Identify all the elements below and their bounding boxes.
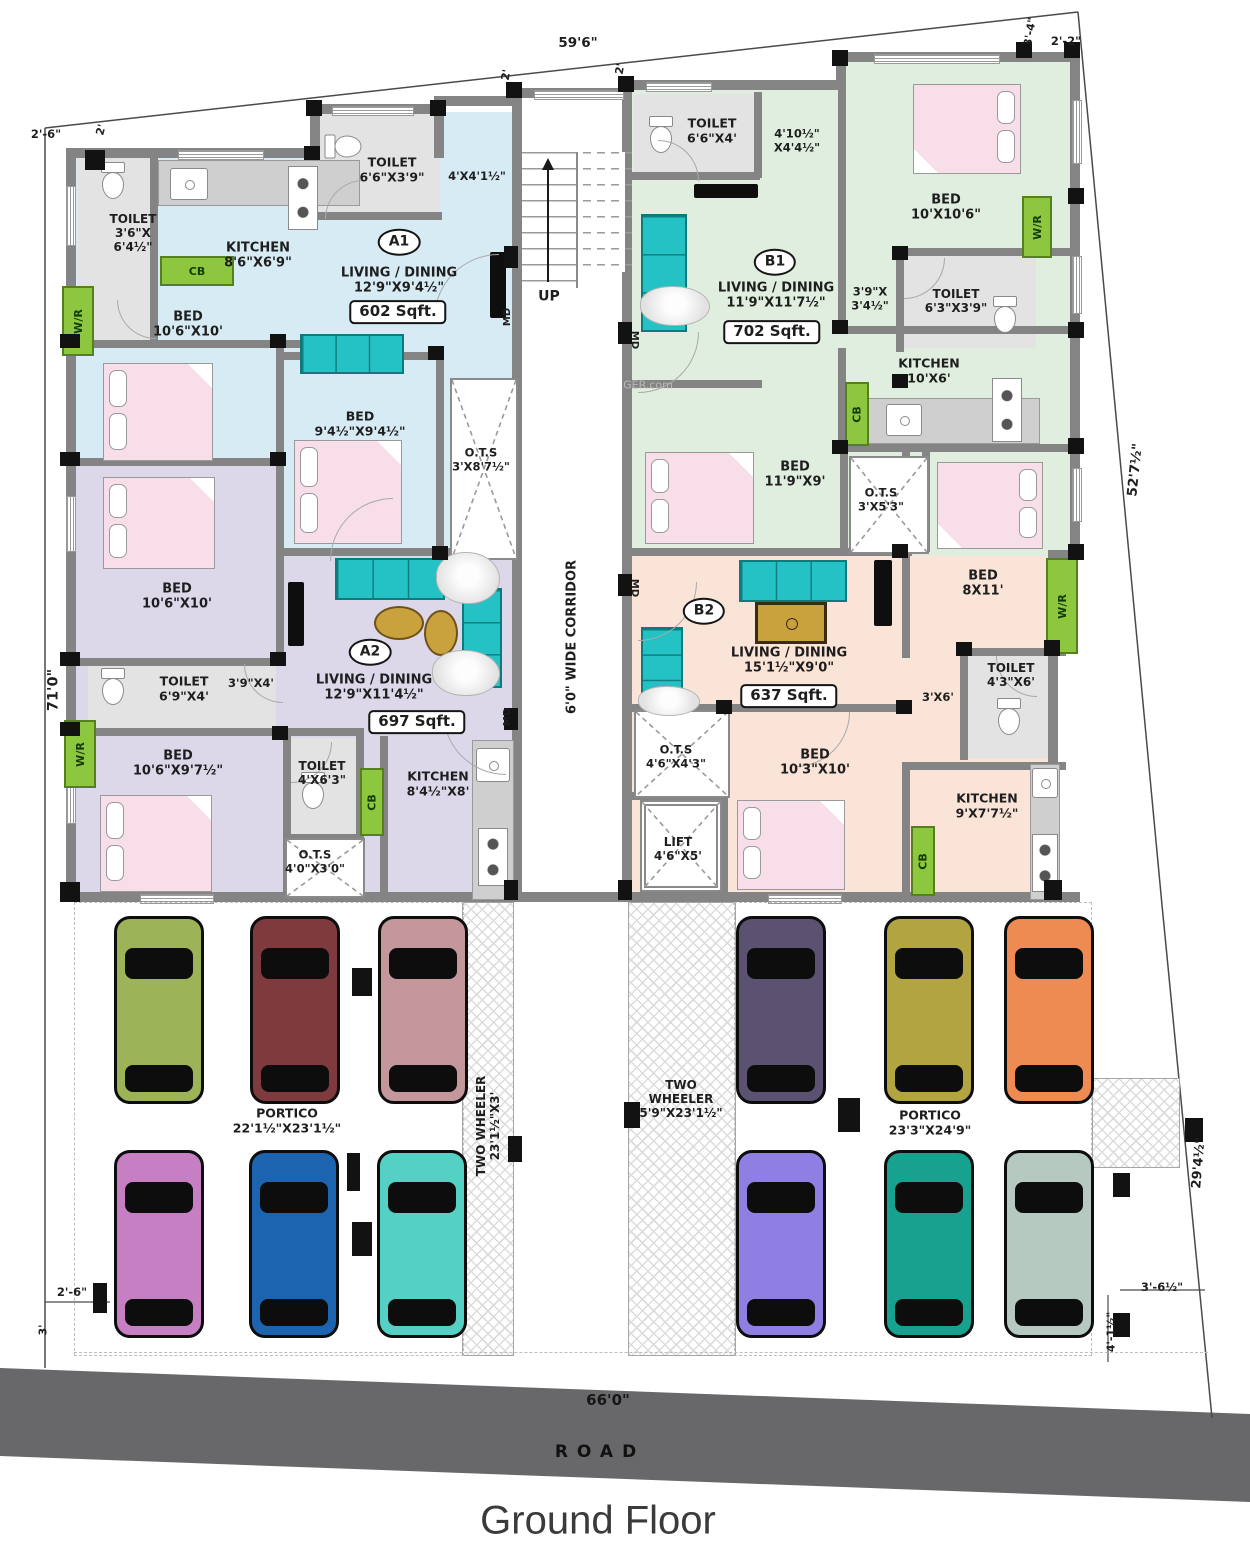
pillow bbox=[109, 484, 127, 518]
bed2-a1: BED9'4½"X9'4½" bbox=[315, 409, 406, 439]
pillow bbox=[997, 130, 1015, 163]
sofa-furniture bbox=[335, 558, 445, 600]
label-line: 10'6"X10' bbox=[142, 597, 212, 612]
passage-b1-2: 3'9"X3'4½" bbox=[851, 285, 888, 312]
label-line: WHEELER bbox=[639, 1092, 722, 1106]
dim: 2' bbox=[94, 123, 109, 137]
parked-car-10 bbox=[736, 1150, 826, 1338]
pillow bbox=[1019, 507, 1037, 539]
column-marker bbox=[1044, 880, 1062, 900]
watermark: GER.com bbox=[623, 380, 673, 393]
pillow bbox=[109, 524, 127, 558]
column-marker bbox=[60, 652, 80, 666]
parked-car-1 bbox=[114, 916, 204, 1104]
label-line: BED bbox=[153, 310, 223, 325]
label-line: 4'10½" bbox=[774, 127, 820, 141]
living-b2: LIVING / DINING15'1½"X9'0" bbox=[731, 646, 847, 677]
parked-car-5 bbox=[249, 1150, 339, 1338]
label-line: 11'9"X11'7½" bbox=[718, 296, 834, 311]
toilet-b2: TOILET4'3"X6' bbox=[987, 661, 1035, 689]
toilet-fixture bbox=[100, 668, 126, 705]
bed-fold bbox=[914, 149, 938, 173]
column-marker bbox=[892, 544, 908, 558]
kitchen-sink bbox=[170, 168, 208, 200]
toilet-bowl bbox=[102, 678, 124, 705]
kitchen-a2: KITCHEN8'4½"X8' bbox=[407, 769, 470, 799]
door-md: MD bbox=[502, 708, 514, 726]
column-marker bbox=[270, 652, 286, 666]
parked-car-11 bbox=[884, 1150, 974, 1338]
dim: 2' bbox=[500, 68, 515, 81]
toilet-bowl bbox=[998, 708, 1020, 735]
column-marker bbox=[347, 1153, 360, 1191]
column-marker bbox=[1068, 322, 1084, 338]
toilet-bowl bbox=[335, 136, 362, 158]
label-line: TWO bbox=[639, 1078, 722, 1092]
bed2-a2: BED10'6"X9'7½" bbox=[133, 749, 223, 780]
column-marker bbox=[832, 50, 848, 66]
ots-b2: O.T.S4'6"X4'3" bbox=[646, 743, 706, 770]
tv-panel bbox=[694, 184, 758, 198]
plant-decor bbox=[640, 286, 710, 326]
utility-box-cb: CB bbox=[360, 768, 384, 836]
label-line: TOILET bbox=[687, 116, 737, 131]
kitchen-sink bbox=[1032, 768, 1058, 798]
twowheeler-right: TWOWHEELER5'9"X23'1½" bbox=[639, 1078, 722, 1120]
table-furniture bbox=[424, 610, 458, 656]
wall-segment bbox=[436, 352, 444, 560]
bed-fold bbox=[190, 478, 214, 502]
label-line: O.T.S bbox=[858, 486, 904, 500]
label-line: 4'6"X4'3" bbox=[646, 757, 706, 771]
stairs-divider bbox=[576, 152, 578, 288]
column-marker bbox=[506, 82, 522, 98]
living-a1: LIVING / DINING12'9"X9'4½" bbox=[341, 266, 457, 297]
label-line: TOILET bbox=[298, 759, 346, 773]
column-marker bbox=[352, 1222, 372, 1256]
table-furniture bbox=[755, 602, 827, 644]
label-line: 22'1½"X23'1½" bbox=[233, 1121, 341, 1136]
door-md: MD bbox=[628, 331, 640, 349]
parked-car-9 bbox=[1004, 916, 1094, 1104]
column-marker bbox=[1068, 544, 1084, 560]
window bbox=[332, 106, 414, 116]
area-a2: 697 Sqft. bbox=[368, 710, 465, 734]
utility-box-cb: CB bbox=[845, 382, 869, 446]
dim: 2'-6" bbox=[57, 1286, 87, 1300]
toilet-fixture bbox=[992, 296, 1018, 333]
label-line: LIVING / DINING bbox=[718, 281, 834, 296]
pillow bbox=[106, 802, 124, 839]
column-marker bbox=[93, 1283, 107, 1313]
bed-fold bbox=[938, 524, 962, 548]
utility-label: W/R bbox=[1056, 594, 1069, 619]
toilet-bowl bbox=[102, 172, 124, 199]
label-line: 3'X8'7½" bbox=[452, 460, 510, 474]
column-marker bbox=[272, 726, 288, 740]
label-line: 15'1½"X9'0" bbox=[731, 661, 847, 676]
pillow bbox=[743, 807, 761, 840]
area-a1: 602 Sqft. bbox=[349, 300, 446, 324]
unit-b2: B2 bbox=[683, 598, 725, 625]
pillow bbox=[109, 413, 127, 450]
pillow bbox=[997, 91, 1015, 124]
parked-car-12 bbox=[1004, 1150, 1094, 1338]
window bbox=[66, 496, 76, 552]
wall-segment bbox=[838, 444, 1078, 452]
label-line: 6'6"X3'9" bbox=[359, 170, 424, 185]
column-marker bbox=[832, 440, 848, 454]
label-line: KITCHEN bbox=[407, 769, 470, 784]
bed-furniture bbox=[103, 363, 213, 461]
label-line: PORTICO bbox=[233, 1106, 341, 1121]
road-label: ROAD bbox=[555, 1442, 645, 1462]
column-marker bbox=[1068, 188, 1084, 204]
parked-car-8 bbox=[884, 916, 974, 1104]
column-marker bbox=[60, 452, 80, 466]
utility-box-w-r: W/R bbox=[1022, 196, 1052, 258]
column-marker bbox=[618, 880, 632, 900]
stove bbox=[992, 378, 1022, 442]
wall-segment bbox=[754, 92, 762, 178]
label-line: TOILET bbox=[925, 287, 988, 301]
window bbox=[66, 186, 76, 246]
parked-car-6 bbox=[377, 1150, 467, 1338]
pillow bbox=[743, 846, 761, 879]
parked-car-4 bbox=[114, 1150, 204, 1338]
wall-segment bbox=[838, 60, 846, 332]
stairs-arrow-head bbox=[542, 158, 554, 170]
column-marker bbox=[60, 882, 80, 902]
column-marker bbox=[504, 880, 518, 900]
wall-segment bbox=[896, 252, 904, 352]
label-line: BED bbox=[780, 748, 850, 763]
column-marker bbox=[428, 346, 444, 360]
tv-panel bbox=[874, 560, 892, 626]
label-line: TOILET bbox=[359, 155, 424, 170]
label-line: 6'9"X4' bbox=[159, 689, 209, 704]
living-a2: LIVING / DINING12'9"X11'4½" bbox=[316, 673, 432, 704]
wall-segment bbox=[960, 648, 968, 760]
wall-segment bbox=[838, 326, 1078, 334]
label-line: 3'9"X bbox=[851, 285, 888, 299]
plant-decor bbox=[432, 650, 500, 696]
toilet-b1-1: TOILET6'6"X4' bbox=[687, 116, 737, 146]
column-marker bbox=[304, 146, 320, 160]
label-line: BED bbox=[911, 193, 981, 208]
label-line: 12'9"X11'4½" bbox=[316, 688, 432, 703]
label-line: 8'4½"X8' bbox=[407, 784, 470, 799]
stove bbox=[288, 166, 318, 230]
label-line: O.T.S bbox=[646, 743, 706, 757]
column-marker bbox=[956, 642, 972, 656]
utility-box-cb: CB bbox=[160, 256, 234, 286]
label-line: 6'6"X4' bbox=[687, 131, 737, 146]
sofa-furniture bbox=[739, 560, 847, 602]
area-b1: 702 Sqft. bbox=[723, 320, 820, 344]
bed-furniture bbox=[913, 84, 1021, 174]
label-line: 10'6"X9'7½" bbox=[133, 764, 223, 779]
toilet-a1-2: TOILET6'6"X3'9" bbox=[359, 155, 424, 185]
column-marker bbox=[838, 1098, 860, 1132]
utility-label: CB bbox=[851, 406, 864, 422]
label-line: 10'X10'6" bbox=[911, 208, 981, 223]
label-line: 10'3"X10' bbox=[780, 763, 850, 778]
toilet-fixture bbox=[325, 134, 362, 160]
passage-b1: 4'10½"X4'4½" bbox=[774, 127, 820, 154]
label-line: LIFT bbox=[654, 835, 702, 849]
column-marker bbox=[352, 968, 372, 996]
label-line: O.T.S bbox=[452, 446, 510, 460]
label-line: KITCHEN bbox=[224, 241, 292, 256]
column-marker bbox=[60, 334, 80, 348]
wall-segment bbox=[66, 728, 364, 736]
label-line: 9'4½"X9'4½" bbox=[315, 424, 406, 439]
pillow bbox=[651, 459, 669, 493]
bed-furniture bbox=[103, 477, 215, 569]
dim: 59'6" bbox=[558, 36, 597, 52]
label-line: 6'4½" bbox=[110, 240, 157, 254]
label-line: 10'X6' bbox=[898, 371, 960, 386]
label-line: PORTICO bbox=[889, 1108, 972, 1123]
column-marker bbox=[430, 100, 446, 116]
bed-furniture bbox=[737, 800, 845, 890]
pillow bbox=[300, 447, 318, 487]
toilet-a2-1: TOILET6'9"X4' bbox=[159, 674, 209, 704]
twowheeler-left: TWO WHEELER23'1½"X3' bbox=[474, 1076, 502, 1177]
kitchen-sink bbox=[886, 404, 922, 436]
stairs-treads-upper bbox=[577, 152, 632, 272]
bed2-b2: BED10'3"X10' bbox=[780, 748, 850, 779]
dim: 52'7½" bbox=[1125, 443, 1146, 498]
bed-fold bbox=[188, 364, 212, 388]
label-line: 4'X6'3" bbox=[298, 773, 346, 787]
bed1-b1: BED10'X10'6" bbox=[911, 193, 981, 224]
label-line: 10'6"X10' bbox=[153, 325, 223, 340]
door-md: MD bbox=[502, 308, 514, 326]
tv-panel bbox=[288, 582, 304, 646]
column-marker bbox=[1113, 1173, 1130, 1197]
floorplan-canvas: W/RW/RW/RW/RCBCBCBCBTOILET3'6"X6'4½"KITC… bbox=[0, 0, 1250, 1550]
column-marker bbox=[85, 150, 105, 170]
bed-fold bbox=[377, 441, 401, 465]
kitchen-b2: KITCHEN9'X7'7½" bbox=[956, 791, 1019, 821]
dim: 71'0" bbox=[45, 669, 62, 711]
kitchen-b1: KITCHEN10'X6' bbox=[898, 356, 960, 386]
label-line: 6'3"X3'9" bbox=[925, 301, 988, 315]
label-line: 4'6"X5' bbox=[654, 849, 702, 863]
label-line: 5'9"X23'1½" bbox=[639, 1106, 722, 1120]
bed2-b1: BED11'9"X9' bbox=[765, 460, 826, 491]
two-wheeler-hatch bbox=[1092, 1078, 1180, 1168]
stove bbox=[478, 828, 508, 886]
label-line: 3'6"X bbox=[110, 226, 157, 240]
dim: 3'-6½" bbox=[1141, 1281, 1183, 1295]
label-line: BED bbox=[142, 582, 212, 597]
toilet-a1-1: TOILET3'6"X6'4½" bbox=[110, 212, 157, 254]
dim: 2'-6" bbox=[31, 128, 61, 142]
road-width-dimension: 66'0" bbox=[586, 1391, 630, 1409]
wall-segment bbox=[902, 762, 910, 900]
passage-a2: 3'9"X4' bbox=[228, 677, 274, 691]
toilet-a2-2: TOILET4'X6'3" bbox=[298, 759, 346, 787]
utility-label: CB bbox=[366, 794, 379, 810]
label-line: TOILET bbox=[159, 674, 209, 689]
label-line: LIVING / DINING bbox=[341, 266, 457, 281]
bed-fold bbox=[820, 801, 844, 825]
page-title: Ground Floor bbox=[480, 1499, 716, 1544]
toilet-b1-2: TOILET6'3"X3'9" bbox=[925, 287, 988, 315]
lift: LIFT4'6"X5' bbox=[654, 835, 702, 863]
column-marker bbox=[618, 76, 634, 92]
stairs-treads bbox=[522, 152, 577, 288]
parking-dashed-line bbox=[74, 1352, 1208, 1353]
door-md: MD bbox=[628, 579, 640, 597]
dim: 2'-2" bbox=[1051, 35, 1081, 49]
label-line: KITCHEN bbox=[898, 356, 960, 371]
dim: 3' bbox=[38, 1324, 51, 1335]
pillow bbox=[300, 493, 318, 533]
unit-a2: A2 bbox=[349, 639, 392, 666]
label-line: 23'1½"X3' bbox=[488, 1076, 502, 1177]
parked-car-7 bbox=[736, 916, 826, 1104]
window bbox=[874, 54, 1000, 64]
ots-a1: O.T.S3'X8'7½" bbox=[452, 446, 510, 473]
stairs-up: UP bbox=[538, 289, 560, 306]
label-line: KITCHEN bbox=[956, 791, 1019, 806]
label-line: TOILET bbox=[987, 661, 1035, 675]
bed-furniture bbox=[100, 795, 212, 892]
column-marker bbox=[508, 1136, 522, 1162]
window bbox=[1072, 256, 1082, 314]
utility-label: W/R bbox=[1031, 215, 1044, 240]
ots-b1: O.T.S3'X5'3" bbox=[858, 486, 904, 513]
toilet-bowl bbox=[994, 306, 1016, 333]
window bbox=[534, 90, 624, 100]
column-marker bbox=[896, 700, 912, 714]
column-marker bbox=[832, 320, 848, 334]
unit-b1: B1 bbox=[754, 249, 796, 276]
corridor: 6'0" WIDE CORRIDOR bbox=[564, 560, 579, 714]
bed1-a2: BED10'6"X10' bbox=[142, 582, 212, 613]
label-line: X4'4½" bbox=[774, 141, 820, 155]
kitchen-a1: KITCHEN8'6"X6'9" bbox=[224, 241, 292, 272]
column-marker bbox=[716, 700, 732, 714]
passage-b2: 3'X6' bbox=[922, 691, 954, 705]
parked-car-3 bbox=[378, 916, 468, 1104]
column-marker bbox=[1068, 438, 1084, 454]
label-line: 23'3"X24'9" bbox=[889, 1123, 972, 1138]
label-line: LIVING / DINING bbox=[316, 673, 432, 688]
label-line: TWO WHEELER bbox=[474, 1076, 488, 1177]
dim: 29'4½" bbox=[1189, 1137, 1209, 1189]
dim: 2' bbox=[614, 62, 629, 75]
sofa-furniture bbox=[300, 334, 404, 374]
window bbox=[1072, 468, 1082, 522]
utility-label: W/R bbox=[72, 309, 85, 334]
label-line: 8X11' bbox=[962, 584, 1003, 599]
toilet-fixture bbox=[996, 698, 1022, 735]
column-marker bbox=[624, 1102, 640, 1128]
dim: 3'-4" bbox=[1022, 17, 1040, 48]
road-band bbox=[0, 1368, 1250, 1502]
utility-label: CB bbox=[189, 265, 205, 278]
window bbox=[1072, 100, 1082, 164]
dim: 4'-1½" bbox=[1106, 1312, 1119, 1352]
column-marker bbox=[270, 452, 286, 466]
pillow bbox=[109, 370, 127, 407]
plant-decor bbox=[638, 686, 700, 716]
label-line: BED bbox=[962, 569, 1003, 584]
living-b1: LIVING / DINING11'9"X11'7½" bbox=[718, 281, 834, 312]
pillow bbox=[1019, 469, 1037, 501]
column-marker bbox=[1044, 640, 1060, 656]
pillow bbox=[106, 845, 124, 882]
label-line: BED bbox=[133, 749, 223, 764]
label-line: O.T.S bbox=[285, 848, 345, 862]
utility-box-cb: CB bbox=[911, 826, 935, 896]
portico-left: PORTICO22'1½"X23'1½" bbox=[233, 1106, 341, 1136]
label-line: 12'9"X9'4½" bbox=[341, 281, 457, 296]
bed-furniture bbox=[937, 462, 1043, 549]
bed-furniture bbox=[645, 452, 754, 544]
column-marker bbox=[270, 334, 286, 348]
window bbox=[646, 82, 712, 92]
label-line: 4'3"X6' bbox=[987, 675, 1035, 689]
column-marker bbox=[892, 246, 908, 260]
column-marker bbox=[432, 546, 448, 560]
wall-segment bbox=[840, 452, 848, 552]
bed1-a1: BED10'6"X10' bbox=[153, 310, 223, 341]
label-line: 8'6"X6'9" bbox=[224, 256, 292, 271]
portico-right: PORTICO23'3"X24'9" bbox=[889, 1108, 972, 1138]
window bbox=[178, 150, 264, 160]
bed-fold bbox=[729, 453, 753, 477]
bed-fold bbox=[187, 796, 211, 820]
label-line: LIVING / DINING bbox=[731, 646, 847, 661]
unit-a1: A1 bbox=[378, 229, 421, 256]
pillow bbox=[651, 499, 669, 533]
label-line: TOILET bbox=[110, 212, 157, 226]
room-area bbox=[434, 112, 516, 156]
ots-a2: O.T.S4'0"X3'0" bbox=[285, 848, 345, 875]
area-b2: 637 Sqft. bbox=[740, 684, 837, 708]
wall-segment bbox=[276, 340, 284, 666]
label-line: 3'4½" bbox=[851, 299, 888, 313]
label-line: 3'X5'3" bbox=[858, 500, 904, 514]
two-wheeler-hatch bbox=[628, 902, 736, 1356]
parked-car-2 bbox=[250, 916, 340, 1104]
label-line: 11'9"X9' bbox=[765, 475, 826, 490]
label-line: BED bbox=[315, 409, 406, 424]
column-marker bbox=[60, 722, 80, 736]
table-furniture bbox=[374, 606, 424, 640]
column-marker bbox=[306, 100, 322, 116]
label-line: BED bbox=[765, 460, 826, 475]
bed1-b2: BED8X11' bbox=[962, 569, 1003, 600]
passage-a1: 4'X4'1½" bbox=[448, 170, 506, 184]
label-line: 4'0"X3'0" bbox=[285, 862, 345, 876]
utility-label: W/R bbox=[74, 742, 87, 767]
column-marker bbox=[504, 246, 518, 268]
utility-label: CB bbox=[917, 853, 930, 869]
label-line: 9'X7'7½" bbox=[956, 806, 1019, 821]
stairs-direction-arrow bbox=[547, 170, 549, 282]
